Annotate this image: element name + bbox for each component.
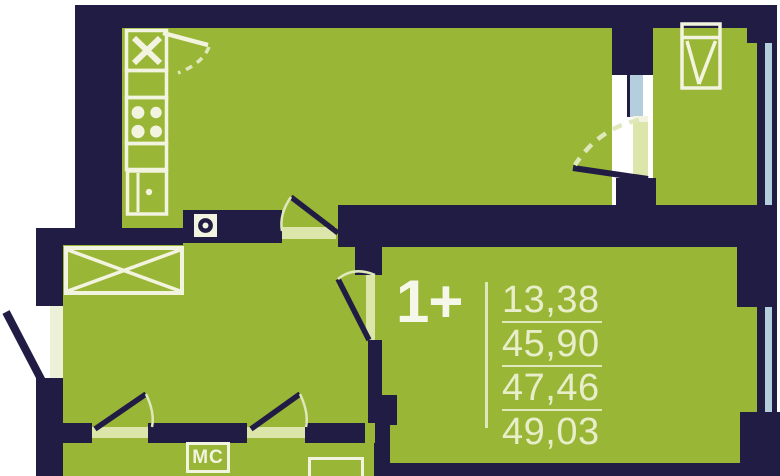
wall-hall-main-low <box>368 395 397 425</box>
wall-balcony-partition-lower <box>616 178 656 208</box>
wall-bottom-main <box>383 463 740 476</box>
threshold-bath-door-2 <box>247 427 305 438</box>
threshold-bath-door-1 <box>92 427 148 438</box>
floor-plan: МС 1+ 13,38 45,90 47,46 49,03 <box>0 0 780 476</box>
area-divider-line <box>485 282 488 428</box>
wall-hall-bottom-band <box>36 423 365 443</box>
window-glass-top-right <box>765 43 772 205</box>
room-hallway <box>63 243 383 425</box>
unit-type-label: 1+ <box>396 272 462 332</box>
room-balcony <box>653 28 757 208</box>
door-swing-icon-entrance <box>6 312 42 381</box>
wall-mullion-top <box>757 43 765 205</box>
wall-hall-main-top <box>355 243 382 275</box>
wall-top-right-block <box>747 5 780 43</box>
area-value-living: 45,90 <box>502 323 602 367</box>
wall-band-right <box>338 205 780 247</box>
wall-left-upper <box>75 5 122 230</box>
threshold-entrance-door <box>50 306 63 378</box>
wall-hall-main-mid <box>368 340 382 395</box>
window-glass-balcony-partition <box>630 75 643 117</box>
wall-corner-bottom-right <box>740 412 780 476</box>
threshold-hall-main-door <box>366 275 375 340</box>
area-value-total-with-balcony: 49,03 <box>502 411 602 453</box>
wall-top <box>75 5 780 28</box>
washing-machine-label-text: МС <box>192 447 224 469</box>
balcony-door-leaf <box>633 117 648 179</box>
wall-band-left <box>183 210 282 243</box>
wall-left-mid <box>36 228 63 306</box>
wall-balcony-partition-upper <box>612 28 653 75</box>
washing-machine-label: МС <box>186 442 230 473</box>
area-list: 13,38 45,90 47,46 49,03 <box>502 279 602 453</box>
wall-bath-divider <box>374 423 390 476</box>
threshold-kitchen-door <box>282 227 336 239</box>
wall-mullion-main <box>757 307 765 412</box>
niche-sliver <box>365 423 375 443</box>
window-glass-main-right <box>765 307 772 412</box>
area-value-total: 47,46 <box>502 367 602 411</box>
wall-corner-mid-right <box>737 243 780 307</box>
area-value-kitchen: 13,38 <box>502 279 602 323</box>
room-kitchen-living <box>122 28 612 212</box>
washing-machine-icon <box>308 457 364 476</box>
